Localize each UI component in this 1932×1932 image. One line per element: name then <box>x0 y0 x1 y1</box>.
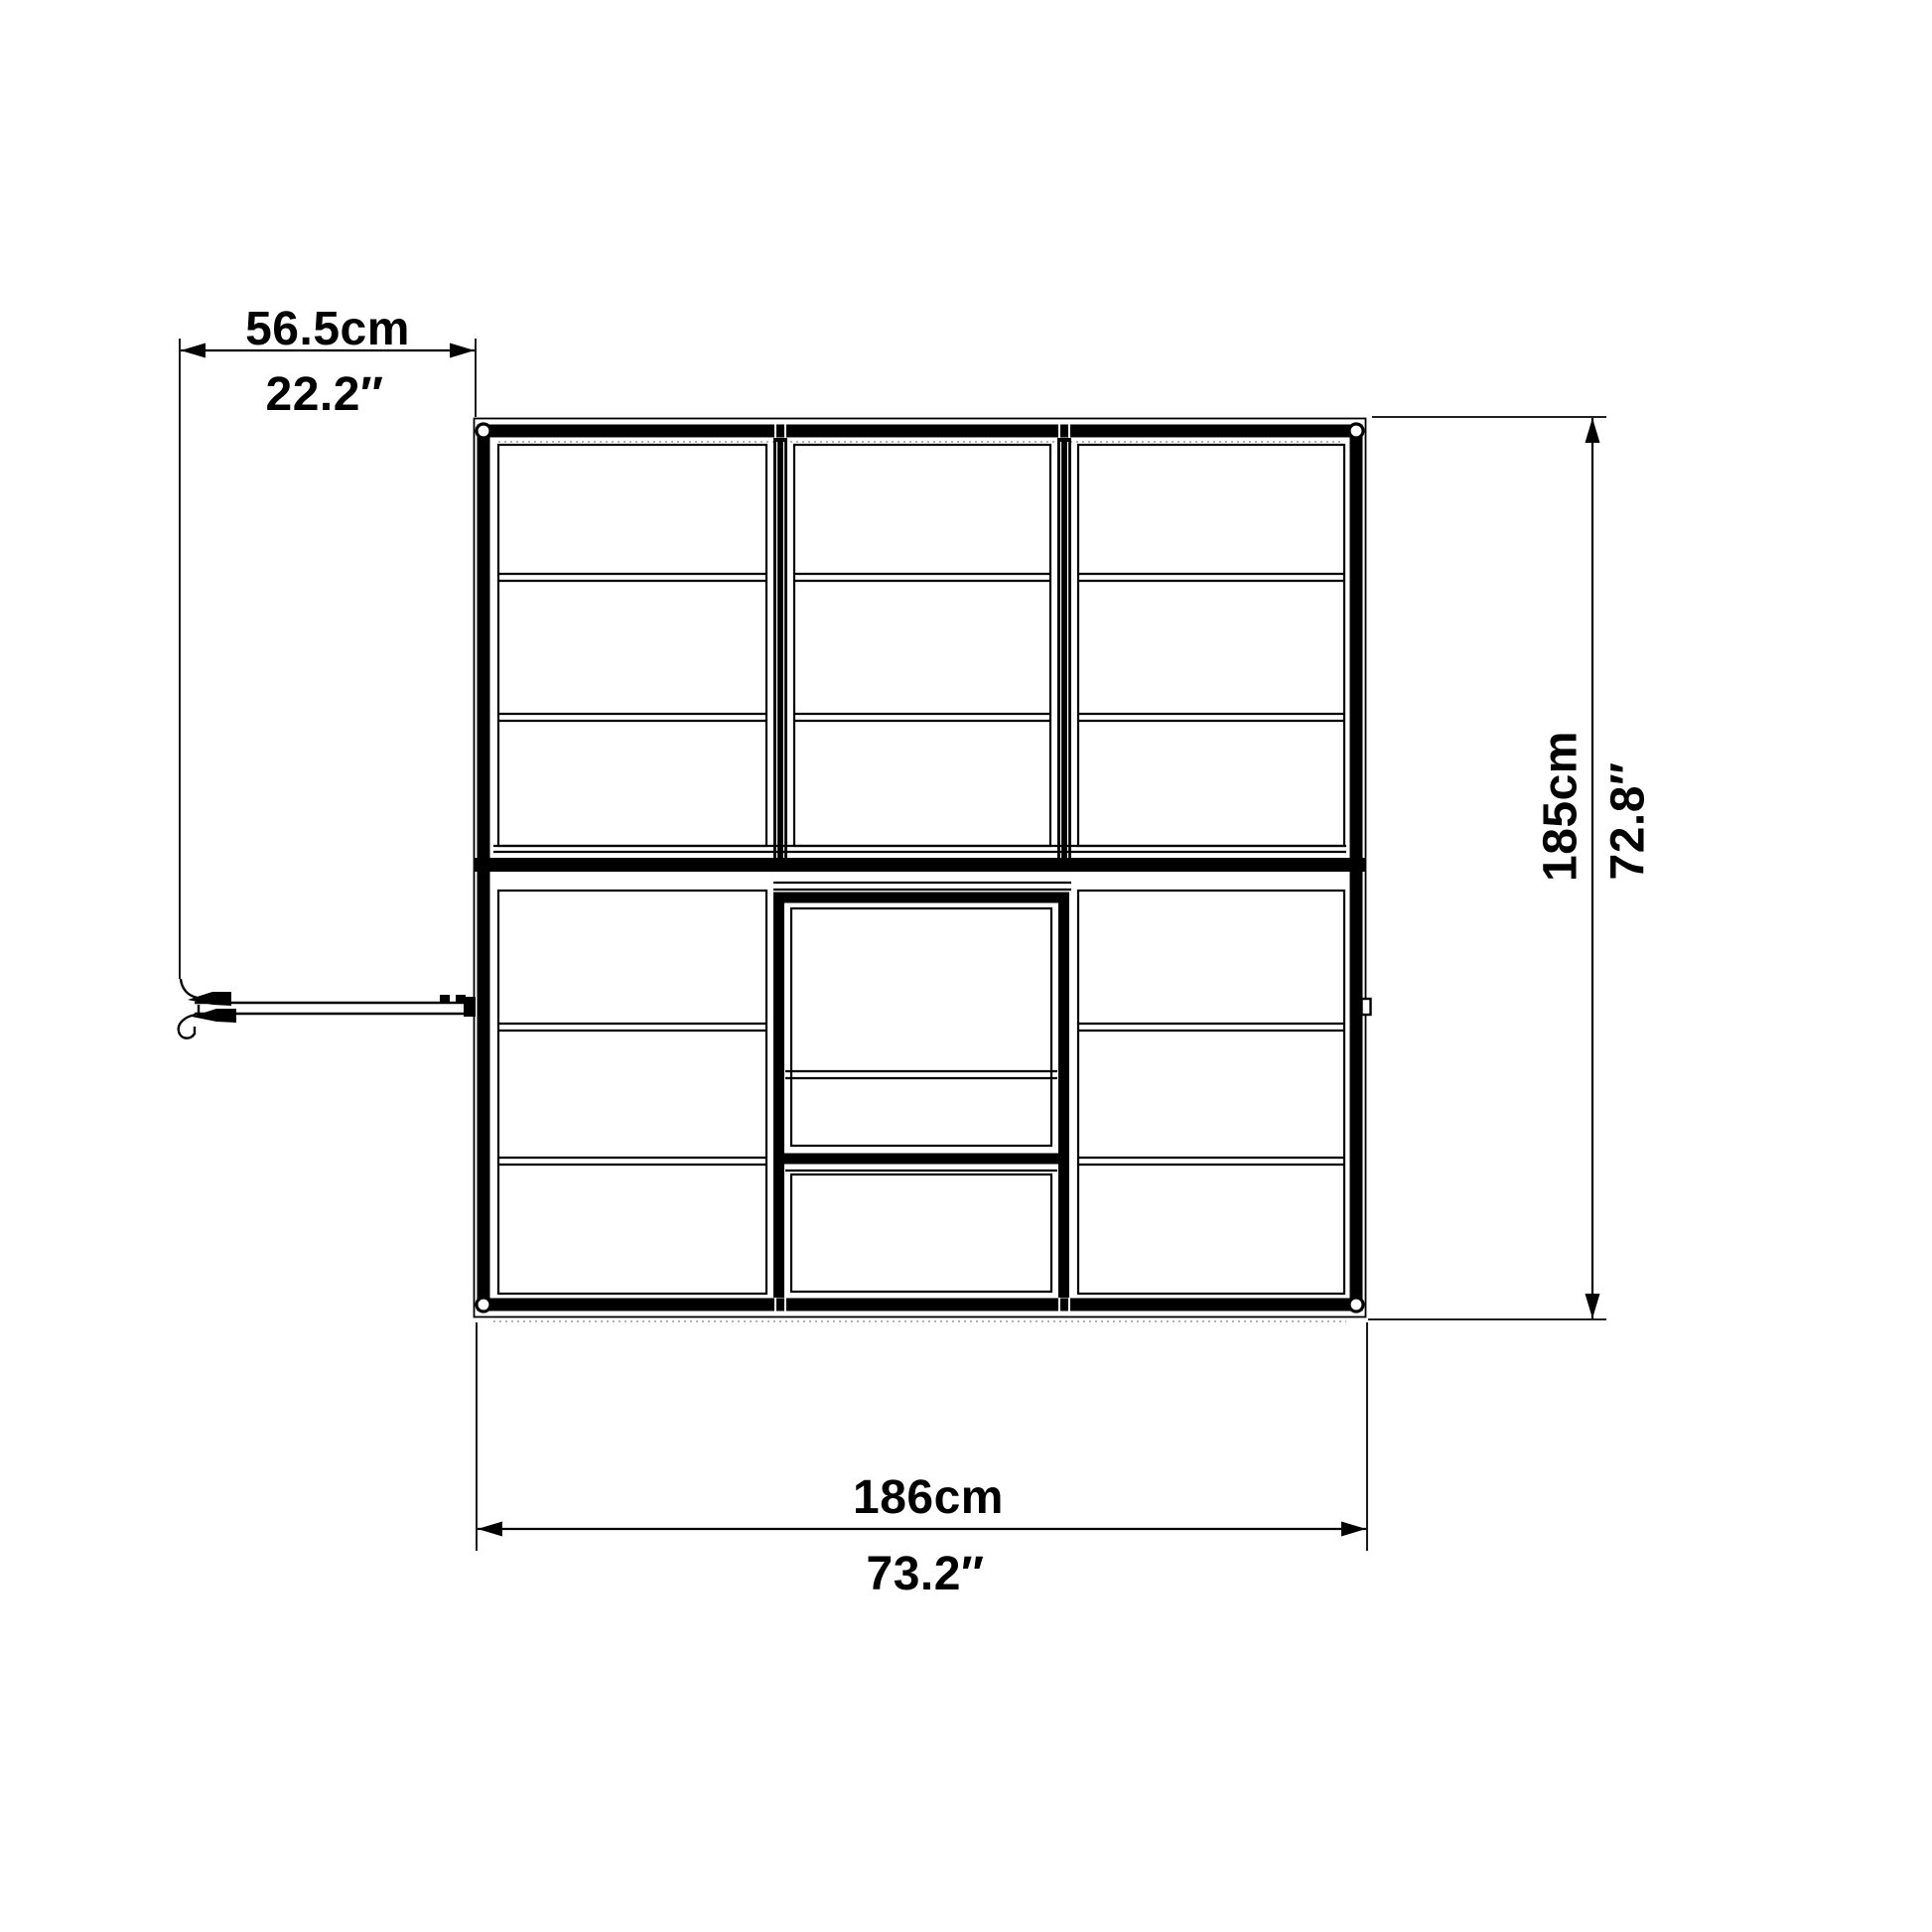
corner-cap-bottom-left <box>477 1298 490 1311</box>
dimension-label-depth-inches: 72.8″ <box>1602 762 1655 881</box>
roof-panel-center <box>794 445 1050 846</box>
roof-panel-left <box>498 445 766 846</box>
handle-hook-curve <box>179 1015 196 1038</box>
front-glazing-bars <box>498 1024 1344 1165</box>
arrow-right-icon <box>450 344 475 358</box>
dimension-width: 186cm 73.2″ <box>477 1322 1367 1600</box>
door-glazing-outline <box>791 908 1051 1146</box>
roof-ridge <box>474 846 1366 890</box>
door-panel <box>779 897 1064 1298</box>
handle-lever-outer <box>188 992 231 1006</box>
roof-mullions <box>773 438 1071 871</box>
arrow-up-icon <box>1586 418 1600 443</box>
front-side-panels <box>498 891 1344 1294</box>
greenhouse-top-view-drawing: 56.5cm 22.2″ 185cm 72.8″ 186cm <box>0 0 1932 1932</box>
dimension-label-door-swing-inches: 22.2″ <box>266 368 384 421</box>
corner-cap-top-left <box>477 424 490 438</box>
door-header-lines <box>773 883 1071 890</box>
dimension-label-depth-cm: 185cm <box>1535 731 1587 882</box>
roof-glazing-bars <box>498 574 1344 721</box>
dimension-door-swing: 56.5cm 22.2″ <box>180 303 476 979</box>
door-handle-icon <box>179 979 236 1038</box>
mullion-right <box>1057 438 1071 871</box>
dimension-label-door-swing-cm: 56.5cm <box>245 303 410 355</box>
door-mid-rail <box>785 1071 1057 1078</box>
door-frame <box>779 897 1064 1159</box>
dimension-label-width-inches: 73.2″ <box>867 1548 985 1600</box>
open-door-swing <box>179 979 476 1038</box>
threshold-panel-outline <box>791 1174 1051 1292</box>
arrow-right-icon <box>1341 1522 1366 1537</box>
dimension-label-width-cm: 186cm <box>853 1471 1004 1524</box>
corner-cap-top-right <box>1349 424 1363 438</box>
mullion-profile-lines <box>777 442 1068 867</box>
arrow-left-icon <box>478 1522 502 1537</box>
door-hinge-bracket <box>464 997 476 1017</box>
arrow-down-icon <box>1586 1294 1600 1318</box>
ridge-edge-lines <box>493 846 1346 852</box>
corner-cap-bottom-right <box>1349 1298 1363 1311</box>
dimension-depth: 185cm 72.8″ <box>1368 417 1655 1319</box>
greenhouse-structure <box>474 419 1371 1322</box>
door-hinge-icon <box>440 995 450 1003</box>
front-panel-left <box>498 891 766 1294</box>
roof-panels <box>498 445 1344 846</box>
right-wall-latch-keeper <box>1362 999 1371 1015</box>
roof-panel-right <box>1078 445 1344 846</box>
technical-drawing-canvas: 56.5cm 22.2″ 185cm 72.8″ 186cm <box>0 0 1932 1932</box>
handle-escutcheon-curve <box>181 979 198 998</box>
dimension-annotations: 56.5cm 22.2″ 185cm 72.8″ 186cm <box>180 303 1655 1600</box>
arrow-left-icon <box>181 344 206 358</box>
front-panel-right <box>1078 891 1344 1294</box>
threshold-side-posts <box>779 1159 1064 1298</box>
mullion-left <box>773 438 787 871</box>
